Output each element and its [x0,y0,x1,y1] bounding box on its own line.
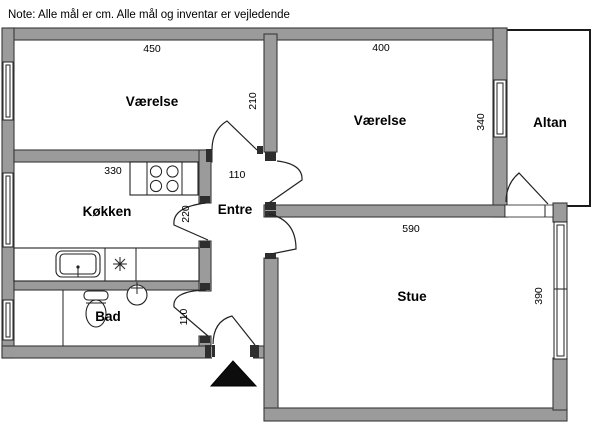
door-post [206,149,212,162]
dim-kitchen-door: 220 [180,205,192,223]
door-post [200,283,210,290]
wall-bedroom1-kitchen [14,150,212,162]
wall-living-bottom [264,408,567,421]
window-frame [557,225,564,356]
dim-bath-door: 110 [178,308,190,325]
dim-bedroom1-width: 450 [143,43,161,55]
asterisk-hob-icon [113,257,127,271]
dim-kitchen-width: 330 [104,165,122,177]
dim-bedroom1-door: 110 [229,169,246,181]
entrance-gap [212,344,253,359]
door-post [200,196,210,203]
window-frame [497,83,503,134]
window-frame [6,303,10,337]
room-label-kitchen: Køkken [83,204,132,219]
kitchen-counter-bottom [14,248,199,281]
room-label-bedroom2: Værelse [354,113,407,128]
door-post [200,336,210,343]
kitchen-fixtures [14,162,199,281]
floor-plan: Note: Alle mål er cm. Alle mål og invent… [0,0,600,423]
window-frame [6,176,10,244]
room-label-balcony: Altan [533,115,567,130]
balcony-door-sill [505,205,553,217]
wall-living-top [264,205,505,217]
dim-hall-depth: 210 [247,92,259,110]
walls [2,28,567,421]
door-post [200,241,210,248]
wall-living-right-top [553,203,567,222]
dim-bedroom2-depth: 340 [475,113,487,131]
door-bedroom2 [269,161,302,203]
wall-bedroom2-left [264,34,277,152]
dim-living-width: 590 [402,223,420,235]
door-post [265,202,276,210]
entrance-frame [250,345,253,357]
dim-bedroom2-width: 400 [372,42,390,54]
room-label-hall: Entre [218,202,253,217]
entrance [211,344,256,386]
room-label-living: Stue [397,289,427,304]
kitchen-counter-top [130,162,198,195]
wall-living-left [264,258,278,410]
door-post [205,345,211,358]
asterisk-center [119,263,122,266]
entrance-arrow-icon [211,361,256,386]
entrance-frame [212,345,215,357]
door-post [257,146,263,154]
door-post [253,345,259,358]
doors [174,121,548,345]
kitchen-sink-icon [56,251,100,277]
toilet-cistern [84,291,108,300]
window-frame [6,65,10,117]
floor-plan-drawing: Note: Alle mål er cm. Alle mål og invent… [0,0,600,423]
wall-top [8,28,507,40]
note-text: Note: Alle mål er cm. Alle mål og invent… [8,9,290,21]
door-bedroom1 [212,121,257,150]
dim-living-depth: 390 [533,287,545,305]
room-label-bedroom1: Værelse [126,94,179,109]
room-label-bath: Bad [95,309,121,324]
door-entrance [213,316,255,345]
door-post [265,152,276,161]
door-living [269,214,296,254]
wall-living-right-bottom [553,358,567,410]
